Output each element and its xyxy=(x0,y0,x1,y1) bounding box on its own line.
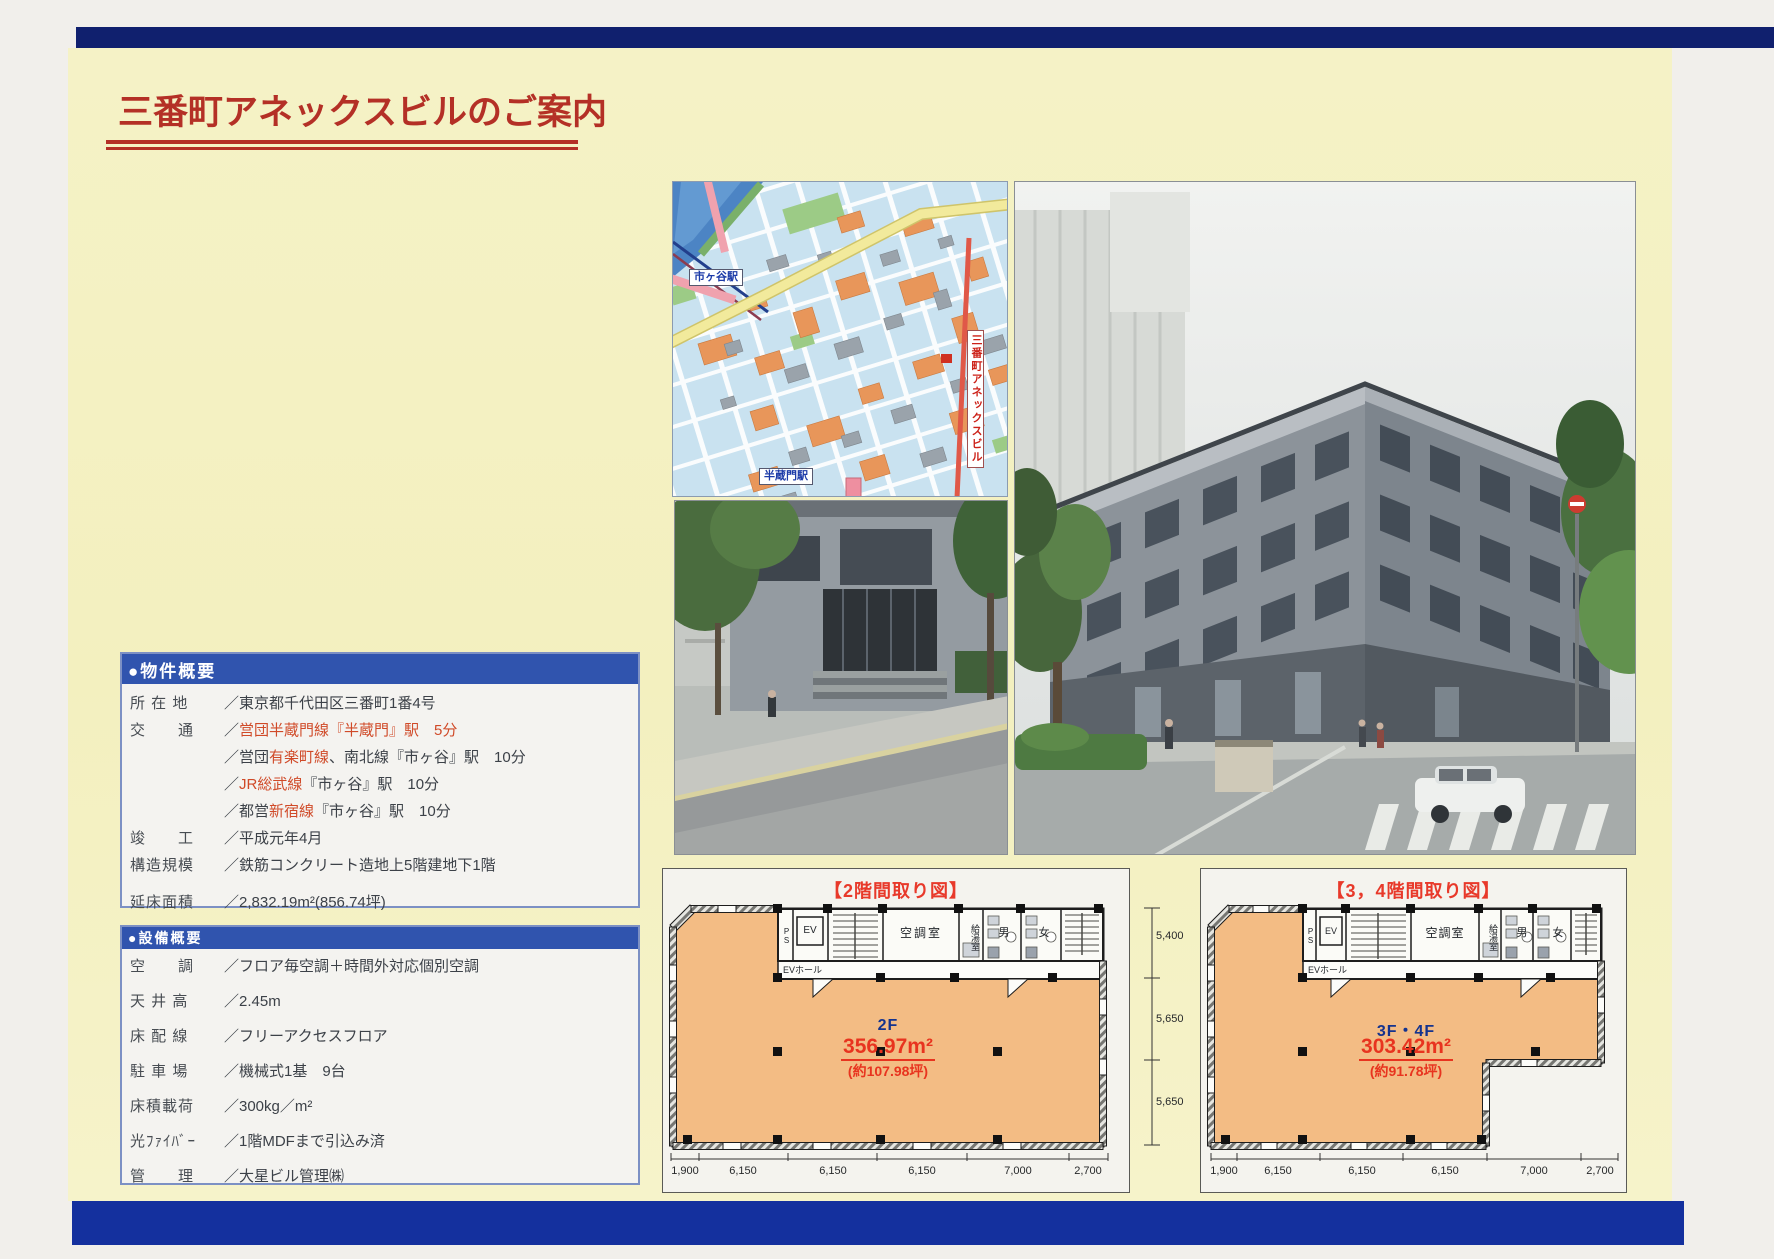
tsubo-label-2f: (約107.98坪) xyxy=(663,1061,1113,1081)
floorplan-2f-panel: 【2階間取り図】 PS EV 空調室 給湯室 男 女 EVホール 2F 356.… xyxy=(662,868,1130,1193)
tsubo-label-3f4f: (約91.78坪) xyxy=(1201,1061,1611,1081)
room-label-men: 男 xyxy=(1515,927,1529,939)
map-station-label-ichigaya: 市ヶ谷駅 xyxy=(689,269,743,286)
room-label-ev-hall: EVホール xyxy=(1308,964,1360,976)
property-row-access-1: 交 通／営団半蔵門線『半蔵門』駅 5分 xyxy=(130,717,630,744)
floorplan-2f-title: 【2階間取り図】 xyxy=(663,877,1129,903)
dim-label: 7,000 xyxy=(992,1165,1044,1177)
room-label-ac: 空調室 xyxy=(1411,927,1479,939)
map-station-label-hanzomon: 半蔵門駅 xyxy=(759,468,813,485)
building-photo-graphic xyxy=(1015,182,1636,855)
dim-label: 2,700 xyxy=(1574,1165,1626,1177)
area-label-3f4f: 303.42m² xyxy=(1201,1035,1611,1059)
map-building-label: 三番町アネックスビル xyxy=(967,330,984,468)
property-row-completion: 竣 工／平成元年4月 xyxy=(130,825,630,852)
property-row-structure: 構造規模／鉄筋コンクリート造地上5階建地下1階 xyxy=(130,852,630,879)
room-label-ps: PS xyxy=(777,913,792,959)
room-label-ac: 空調室 xyxy=(883,927,959,939)
brochure-page: 三番町アネックスビルのご案内 xyxy=(0,0,1774,1259)
dim-label: 6,150 xyxy=(896,1165,948,1177)
dim-label: 6,150 xyxy=(1252,1165,1304,1177)
room-label-ev: EV xyxy=(1320,925,1342,937)
facility-overview-box: ●設備概要 空 調／フロア毎空調＋時間外対応個別空調 天 井 高／2.45m 床… xyxy=(120,925,640,1185)
property-row-access-2: ／営団有楽町線、南北線『市ヶ谷』駅 10分 xyxy=(130,744,630,771)
entrance-photo xyxy=(674,500,1008,855)
room-label-ev: EV xyxy=(797,925,823,937)
room-label-women: 女 xyxy=(1037,927,1051,939)
property-header: ●物件概要 xyxy=(122,654,638,684)
room-label-pantry: 給湯室 xyxy=(1481,914,1499,960)
facility-row-fiber: 光ﾌｧｲﾊﾞｰ／1階MDFまで引込み済 xyxy=(130,1134,630,1149)
room-label-ps: PS xyxy=(1302,913,1316,959)
facility-row-floor-wiring: 床 配 線／フリーアクセスフロア xyxy=(130,1029,630,1044)
location-map: 市ヶ谷駅 半蔵門駅 三番町アネックスビル xyxy=(672,181,1008,497)
property-row-floor-area: 延床面積／2,832.19m²(856.74坪) xyxy=(130,889,630,916)
room-label-women: 女 xyxy=(1551,927,1565,939)
property-row-access-3: ／JR総武線『市ヶ谷』駅 10分 xyxy=(130,771,630,798)
facility-row-floor-load: 床積載荷／300kg／m² xyxy=(130,1099,630,1114)
dim-label: 2,700 xyxy=(1062,1165,1114,1177)
bottom-accent-bar xyxy=(72,1201,1684,1245)
dim-label: 6,150 xyxy=(1419,1165,1471,1177)
floorplan-3f4f-panel: 【3，4階間取り図】 PS EV 空調室 給湯室 男 女 EVホール 3F・4F… xyxy=(1200,868,1627,1193)
facility-row-ceiling: 天 井 高／2.45m xyxy=(130,994,630,1009)
property-row-access-4: ／都営新宿線『市ヶ谷』駅 10分 xyxy=(130,798,630,825)
side-dimension-line xyxy=(1130,868,1200,1193)
dim-label: 1,900 xyxy=(659,1165,711,1177)
side-dimensions: 5,400 5,650 5,650 xyxy=(1130,868,1200,1193)
facility-header: ●設備概要 xyxy=(122,927,638,949)
property-row-address: 所 在 地／東京都千代田区三番町1番4号 xyxy=(130,690,630,717)
dim-label: 7,000 xyxy=(1508,1165,1560,1177)
side-dim-label: 5,650 xyxy=(1156,1096,1202,1108)
dim-label: 1,900 xyxy=(1198,1165,1250,1177)
facility-row-parking: 駐 車 場／機械式1基 9台 xyxy=(130,1064,630,1079)
dim-label: 6,150 xyxy=(717,1165,769,1177)
page-title: 三番町アネックスビルのご案内 xyxy=(118,84,607,135)
room-label-ev-hall: EVホール xyxy=(783,964,835,976)
facility-row-hvac: 空 調／フロア毎空調＋時間外対応個別空調 xyxy=(130,959,630,974)
room-label-men: 男 xyxy=(997,927,1011,939)
top-accent-bar xyxy=(76,27,1774,48)
property-overview-box: ●物件概要 所 在 地／東京都千代田区三番町1番4号 交 通／営団半蔵門線『半蔵… xyxy=(120,652,640,908)
map-graphic xyxy=(673,182,1008,497)
room-label-pantry: 給湯室 xyxy=(961,914,981,960)
title-underline xyxy=(106,140,578,150)
side-dim-label: 5,400 xyxy=(1156,930,1202,942)
dim-label: 6,150 xyxy=(807,1165,859,1177)
floorplan-3f4f-title: 【3，4階間取り図】 xyxy=(1201,877,1626,903)
facility-row-management: 管 理／大星ビル管理㈱ xyxy=(130,1169,630,1184)
building-photo xyxy=(1014,181,1636,855)
dim-label: 6,150 xyxy=(1336,1165,1388,1177)
floor-label-2f: 2F xyxy=(663,1017,1113,1035)
side-dim-label: 5,650 xyxy=(1156,1013,1202,1025)
area-label-2f: 356.97m² xyxy=(663,1035,1113,1059)
entrance-photo-graphic xyxy=(675,501,1008,855)
